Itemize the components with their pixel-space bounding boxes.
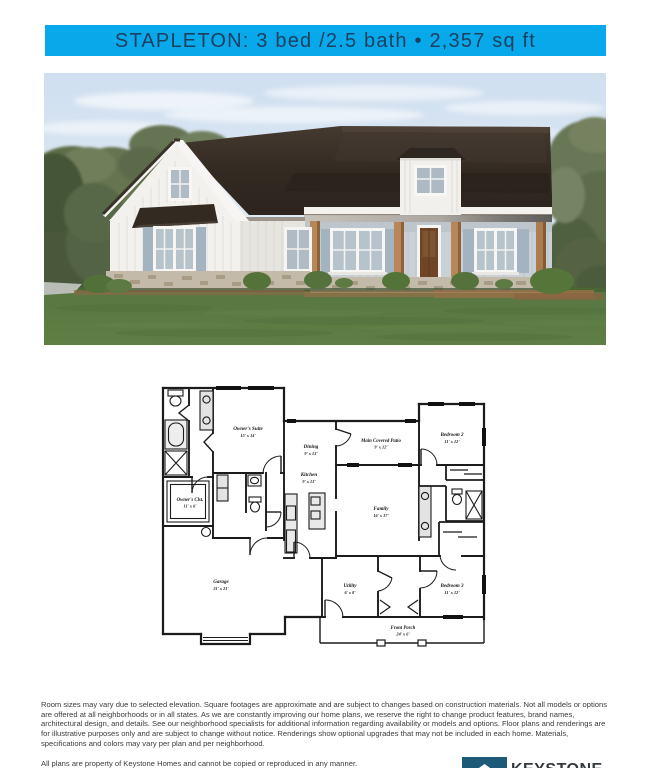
svg-text:Garage: Garage: [213, 579, 229, 585]
svg-text:11' x 12': 11' x 12': [444, 439, 460, 444]
svg-text:24' x 6': 24' x 6': [395, 632, 410, 637]
svg-text:KEYSTONE: KEYSTONE: [511, 761, 603, 768]
svg-text:Owner's Clst.: Owner's Clst.: [177, 498, 204, 503]
svg-text:16' x 17': 16' x 17': [373, 513, 389, 518]
svg-text:21' x 21': 21' x 21': [212, 586, 229, 591]
svg-text:Front Porch: Front Porch: [391, 626, 416, 631]
svg-text:11' x 6': 11' x 6': [184, 504, 198, 509]
svg-text:Main Covered Patio: Main Covered Patio: [360, 439, 401, 444]
svg-text:9' x 13': 9' x 13': [304, 451, 318, 456]
svg-text:Kitchen: Kitchen: [300, 472, 318, 478]
svg-text:15' x 14': 15' x 14': [240, 433, 256, 438]
svg-text:Utility: Utility: [343, 583, 357, 589]
svg-text:11' x 12': 11' x 12': [444, 590, 460, 595]
svg-text:Bedroom 3: Bedroom 3: [439, 583, 464, 589]
svg-text:6' x 8': 6' x 8': [345, 590, 357, 595]
svg-text:9' x 13': 9' x 13': [302, 479, 316, 484]
svg-text:Dining: Dining: [303, 444, 319, 450]
svg-text:Family: Family: [374, 506, 390, 512]
svg-text:9' x 12': 9' x 12': [374, 445, 388, 450]
svg-text:Bedroom 2: Bedroom 2: [439, 432, 464, 438]
svg-text:Owner's Suite: Owner's Suite: [233, 426, 263, 432]
